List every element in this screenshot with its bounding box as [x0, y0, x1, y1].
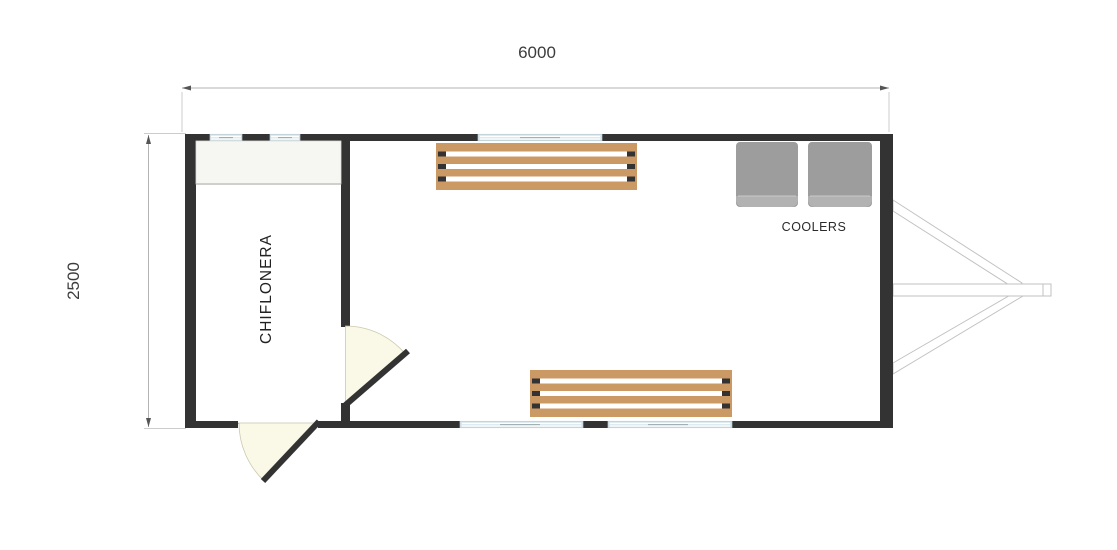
height-dim-label: 2500: [64, 262, 83, 300]
trailer-hitch: [893, 200, 1051, 374]
window: [270, 134, 300, 140]
wall-bottom-segment: [732, 421, 893, 428]
window: [210, 134, 242, 140]
interior-door: [346, 326, 409, 405]
window: [460, 421, 583, 427]
chiflonera-room: CHIFLONERA: [196, 141, 341, 344]
wall-bottom-segment: [318, 421, 460, 428]
window: [608, 421, 732, 427]
cooler-1: [736, 142, 798, 207]
window: [478, 134, 602, 140]
partition-upper: [341, 134, 350, 327]
bench-bottom: [530, 370, 732, 417]
coolers-label: COOLERS: [782, 220, 847, 234]
wall-bottom-segment: [185, 421, 238, 428]
hitch-tongue: [893, 284, 1051, 296]
chiflonera-room-label: CHIFLONERA: [258, 234, 275, 344]
dimension-height: 2500: [64, 134, 186, 429]
wall-top-segment: [242, 134, 270, 141]
exterior-door: [238, 422, 319, 482]
chiflonera-counter: [196, 141, 341, 184]
dim-arrow-down: [146, 418, 151, 427]
dimension-width: 6000: [182, 43, 889, 132]
wall-top-segment: [185, 134, 210, 141]
wall-top-segment: [300, 134, 478, 141]
wall-top-segment: [602, 134, 893, 141]
wall-right: [880, 134, 893, 428]
dim-arrow-up: [146, 135, 151, 144]
width-dim-label: 6000: [518, 43, 556, 62]
dim-arrow-right: [880, 86, 889, 91]
dim-arrow-left: [182, 86, 191, 91]
floor-plan-page: CHIFLONERA: [0, 0, 1117, 550]
coolers: COOLERS: [736, 142, 872, 234]
hitch-bar-bottom: [893, 290, 1023, 374]
cooler-2: [808, 142, 872, 207]
wall-left: [185, 134, 196, 428]
partition-door-stub: [341, 403, 350, 428]
wall-bottom-segment: [583, 421, 608, 428]
floor-plan-canvas: CHIFLONERA: [0, 0, 1117, 550]
hitch-bar-top: [893, 200, 1022, 290]
bench-top: [436, 143, 637, 190]
